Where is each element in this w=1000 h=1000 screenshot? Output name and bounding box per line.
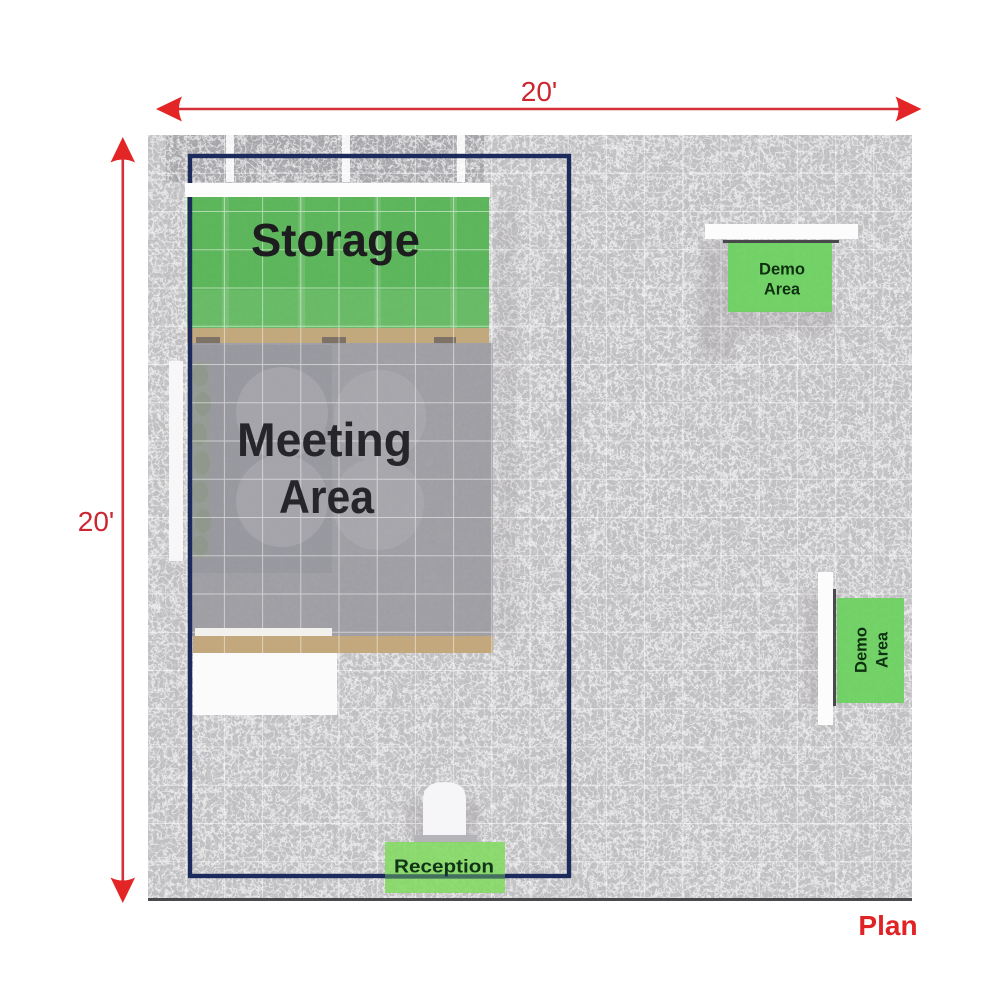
svg-text:Area: Area bbox=[873, 631, 892, 668]
svg-text:Storage: Storage bbox=[251, 214, 420, 266]
svg-text:Reception: Reception bbox=[394, 857, 494, 877]
svg-text:Area: Area bbox=[279, 470, 375, 523]
svg-text:20': 20' bbox=[78, 506, 115, 537]
svg-text:Demo: Demo bbox=[759, 260, 805, 279]
svg-text:Demo: Demo bbox=[852, 627, 871, 673]
svg-text:20': 20' bbox=[521, 76, 558, 107]
svg-text:Meeting: Meeting bbox=[237, 413, 412, 466]
svg-text:Area: Area bbox=[764, 280, 801, 299]
svg-text:Plan: Plan bbox=[858, 910, 917, 941]
